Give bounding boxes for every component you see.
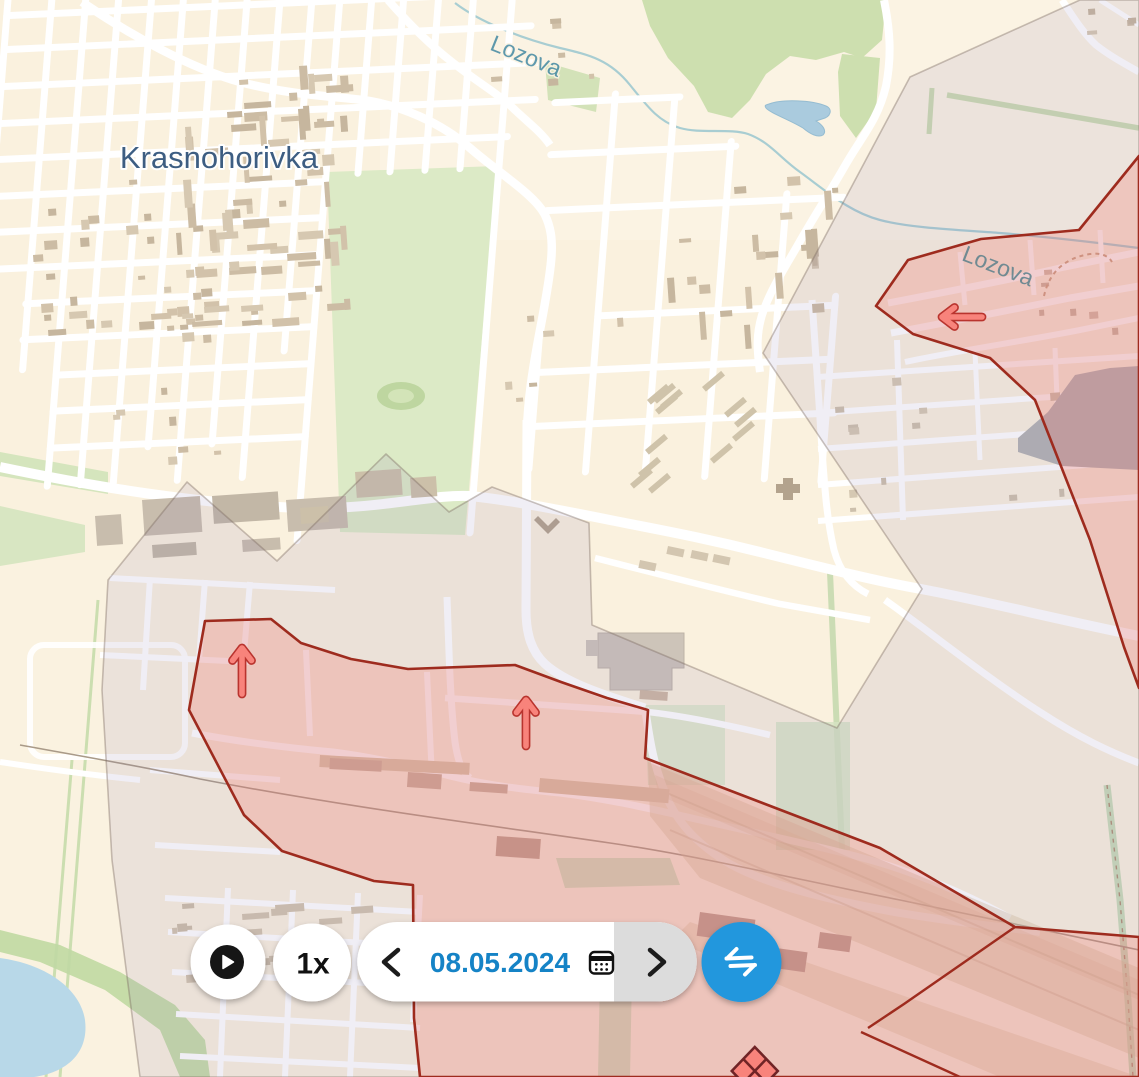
svg-text:08.05.2024: 08.05.2024: [430, 947, 571, 978]
svg-text:Krasnohorivka: Krasnohorivka: [120, 140, 319, 175]
svg-text:1x: 1x: [296, 948, 330, 981]
